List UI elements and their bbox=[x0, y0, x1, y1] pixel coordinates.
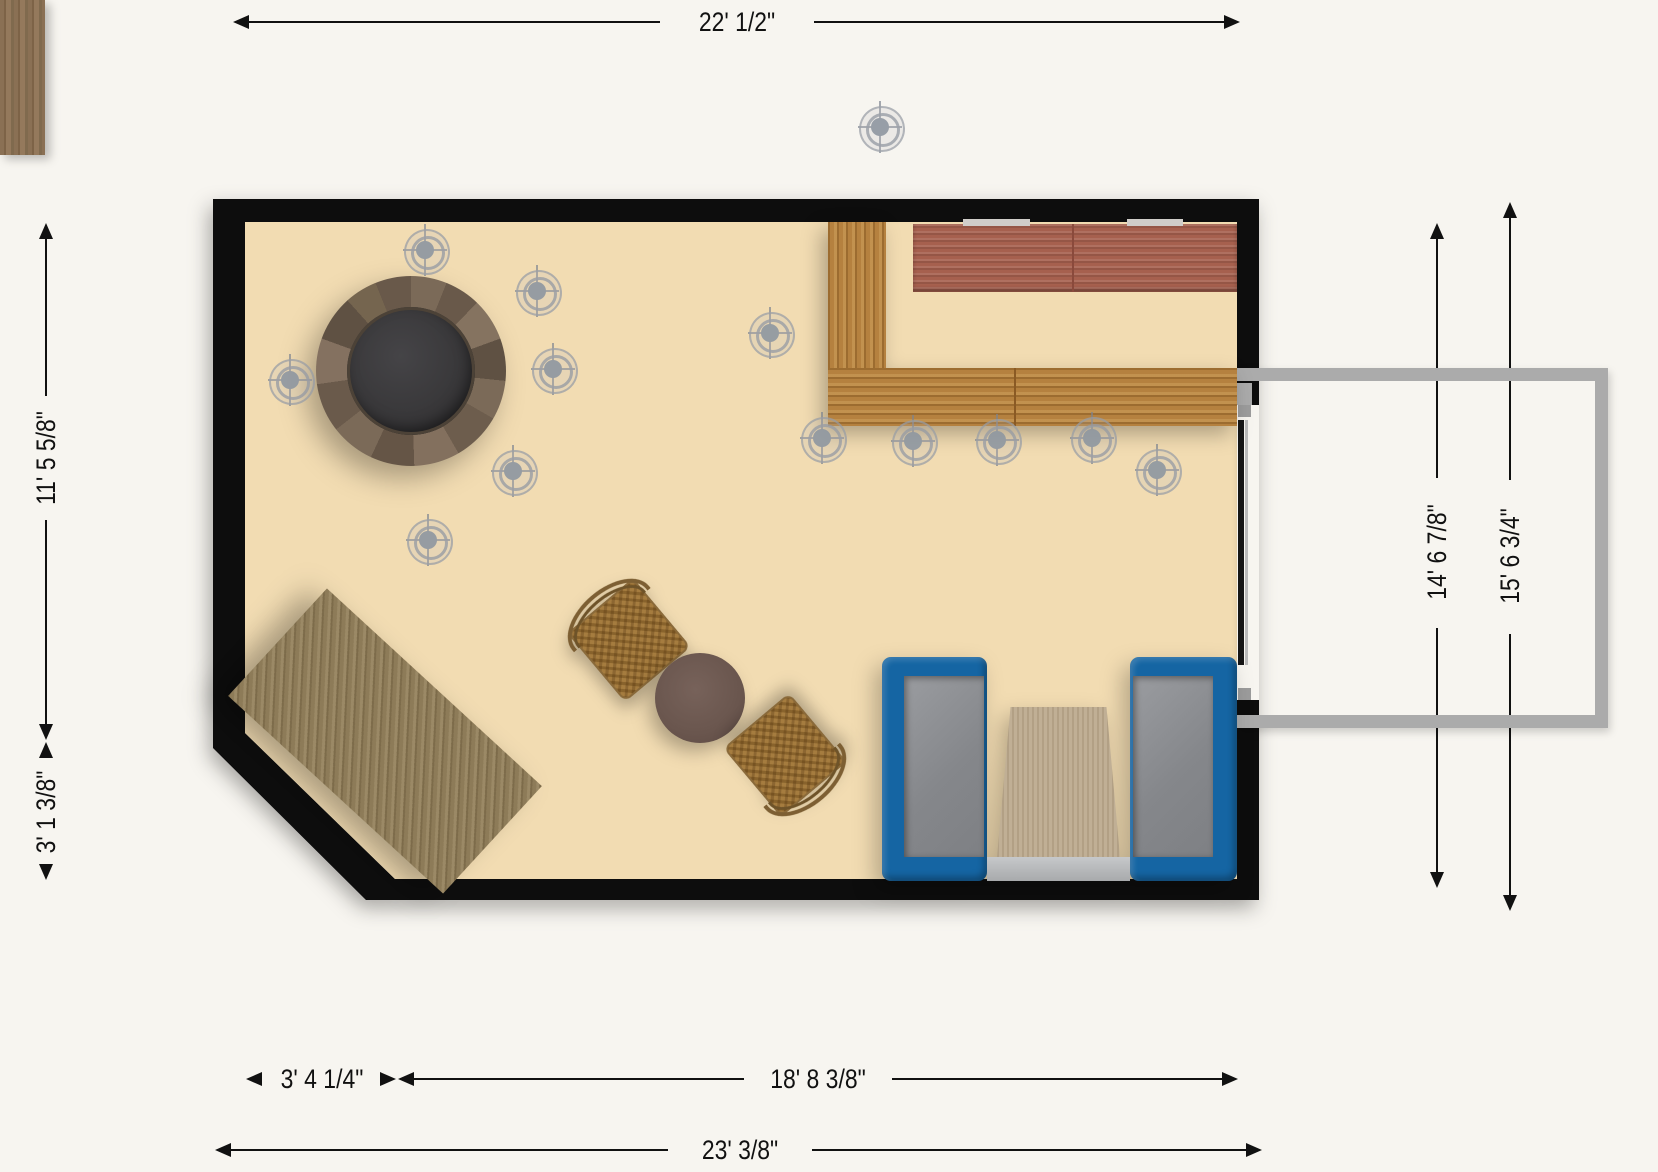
patio-frame[interactable] bbox=[1237, 368, 1608, 728]
light-center bbox=[904, 432, 922, 450]
light-center bbox=[416, 241, 434, 259]
hot-tub[interactable] bbox=[316, 276, 506, 466]
bench-cushion bbox=[904, 676, 984, 857]
counter-seam bbox=[1072, 224, 1074, 292]
ceiling-light-icon[interactable] bbox=[744, 307, 796, 359]
ceiling-light-icon[interactable] bbox=[264, 354, 316, 406]
counter-wall-fixture bbox=[1127, 219, 1183, 226]
bar-counter-vertical[interactable] bbox=[828, 222, 886, 368]
light-center bbox=[419, 531, 437, 549]
door-jamb bbox=[1238, 405, 1251, 417]
ceiling-light-icon[interactable] bbox=[1131, 444, 1183, 496]
ceiling-light-icon[interactable] bbox=[527, 343, 579, 395]
light-center bbox=[528, 282, 546, 300]
light-center bbox=[1148, 461, 1166, 479]
light-center bbox=[1083, 429, 1101, 447]
ceiling-light-icon[interactable] bbox=[402, 514, 454, 566]
door-jamb bbox=[1238, 688, 1251, 700]
ceiling-light-icon[interactable] bbox=[854, 101, 906, 153]
bench-cushion bbox=[1133, 676, 1213, 857]
floorplan-canvas: 22' 1/2" 11' 5 5/8" 3' 1 3/8" 14' 6 7/8"… bbox=[0, 0, 1658, 1172]
light-center bbox=[761, 324, 779, 342]
light-center bbox=[281, 371, 299, 389]
ceiling-light-icon[interactable] bbox=[1066, 412, 1118, 464]
ceiling-light-icon[interactable] bbox=[796, 412, 848, 464]
counter-wall-fixture bbox=[963, 219, 1030, 226]
booth-base bbox=[987, 857, 1130, 881]
booth-bench-left[interactable] bbox=[882, 657, 987, 881]
ceiling-light-icon[interactable] bbox=[971, 414, 1023, 466]
sliding-door-rail bbox=[1245, 420, 1248, 665]
hot-tub-water bbox=[347, 307, 475, 435]
light-center bbox=[988, 431, 1006, 449]
light-center bbox=[871, 118, 889, 136]
light-center bbox=[813, 429, 831, 447]
bar-back-counter[interactable] bbox=[913, 224, 1237, 292]
ceiling-light-icon[interactable] bbox=[487, 445, 539, 497]
sliding-door[interactable] bbox=[1238, 420, 1244, 665]
ceiling-light-icon[interactable] bbox=[511, 265, 563, 317]
bistro-table[interactable] bbox=[655, 653, 745, 743]
light-center bbox=[544, 360, 562, 378]
booth-bench-right[interactable] bbox=[1130, 657, 1237, 881]
wood-sample-patch[interactable] bbox=[0, 0, 45, 155]
ceiling-light-icon[interactable] bbox=[399, 224, 451, 276]
booth-table[interactable] bbox=[997, 707, 1120, 857]
door-jamb-tab bbox=[1237, 383, 1252, 405]
light-center bbox=[504, 462, 522, 480]
ceiling-light-icon[interactable] bbox=[887, 415, 939, 467]
